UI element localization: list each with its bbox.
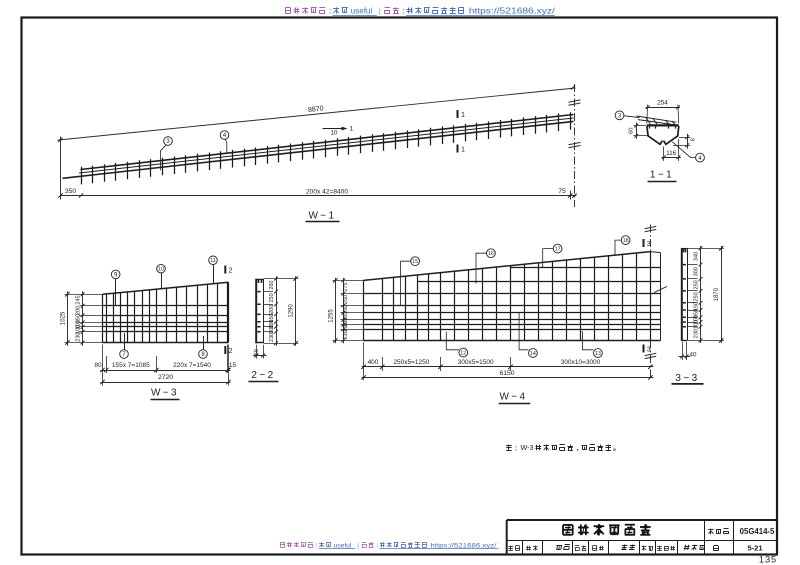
svg-text:5-21: 5-21	[747, 544, 762, 553]
svg-text:200x 42=8400: 200x 42=8400	[306, 189, 348, 196]
svg-text:15: 15	[412, 259, 418, 265]
svg-text:230: 230	[343, 330, 349, 339]
svg-text:15: 15	[229, 362, 237, 369]
svg-text:60: 60	[254, 349, 260, 355]
svg-text:116: 116	[666, 150, 676, 157]
svg-text:230: 230	[76, 333, 82, 342]
svg-text:1−1: 1−1	[650, 170, 674, 181]
svg-text:W-3: W-3	[521, 443, 534, 452]
svg-text:100: 100	[269, 325, 275, 334]
svg-text:245: 245	[76, 295, 82, 304]
svg-text:2: 2	[229, 266, 233, 275]
svg-text:14: 14	[530, 351, 536, 357]
svg-text:230: 230	[693, 329, 699, 338]
svg-text:230: 230	[269, 333, 275, 342]
svg-text:80: 80	[94, 362, 102, 369]
svg-text:2720: 2720	[158, 374, 173, 381]
svg-text:11: 11	[210, 258, 216, 264]
svg-text:340: 340	[693, 252, 699, 261]
svg-text:|: |	[357, 542, 359, 549]
svg-text:135: 135	[759, 555, 777, 565]
svg-text:17: 17	[555, 247, 561, 253]
svg-text:10: 10	[158, 267, 164, 273]
svg-text:400: 400	[368, 359, 379, 366]
svg-text:60: 60	[629, 127, 635, 133]
svg-text:1255: 1255	[328, 309, 334, 323]
svg-text:12: 12	[460, 351, 466, 357]
svg-text:18: 18	[623, 238, 629, 244]
svg-text:1: 1	[461, 110, 465, 119]
svg-text:3: 3	[647, 239, 651, 248]
svg-text:220x 7=1540: 220x 7=1540	[173, 362, 211, 369]
svg-text:05G414-5: 05G414-5	[740, 527, 775, 536]
svg-text:275: 275	[343, 282, 349, 291]
svg-text:2: 2	[229, 346, 233, 355]
svg-text:1: 1	[461, 145, 465, 154]
svg-text:250: 250	[343, 295, 349, 304]
svg-text:16: 16	[488, 251, 494, 257]
svg-text:W−3: W−3	[151, 388, 179, 399]
svg-text:300: 300	[693, 267, 699, 276]
svg-text:3: 3	[647, 345, 651, 354]
svg-text:200: 200	[76, 306, 82, 315]
svg-text:W−1: W−1	[308, 211, 336, 222]
svg-text:200: 200	[269, 305, 275, 314]
svg-text:1: 1	[350, 126, 354, 133]
svg-text:100: 100	[693, 320, 699, 329]
svg-text:13: 13	[595, 351, 601, 357]
svg-text:1870: 1870	[714, 287, 720, 301]
svg-text:260: 260	[269, 281, 275, 290]
svg-text:1025: 1025	[61, 311, 67, 325]
svg-text:6150: 6150	[499, 370, 514, 377]
svg-text:8: 8	[690, 138, 696, 141]
svg-text:250x5=1250: 250x5=1250	[393, 359, 429, 366]
svg-text:100: 100	[343, 322, 349, 331]
svg-text:250: 250	[693, 280, 699, 289]
svg-text:300x10=3000: 300x10=3000	[561, 359, 601, 366]
svg-text:300x5=1500: 300x5=1500	[458, 359, 494, 366]
svg-text:254: 254	[657, 99, 668, 106]
svg-text:https://521686.xyz/: https://521686.xyz/	[469, 7, 556, 16]
svg-text:|: |	[379, 7, 381, 16]
svg-text:75: 75	[558, 188, 566, 195]
svg-text:250: 250	[269, 293, 275, 302]
svg-text:250: 250	[693, 292, 699, 301]
svg-text:W−4: W−4	[499, 392, 527, 403]
svg-text:useful: useful	[351, 7, 373, 16]
svg-text:1290: 1290	[289, 304, 295, 318]
svg-text:155x 7=1085: 155x 7=1085	[112, 362, 150, 369]
svg-text:350: 350	[65, 188, 77, 195]
svg-text:40: 40	[690, 351, 697, 358]
svg-text:2−2: 2−2	[251, 370, 275, 381]
svg-text:3−3: 3−3	[675, 373, 699, 384]
svg-text:10: 10	[331, 130, 338, 137]
